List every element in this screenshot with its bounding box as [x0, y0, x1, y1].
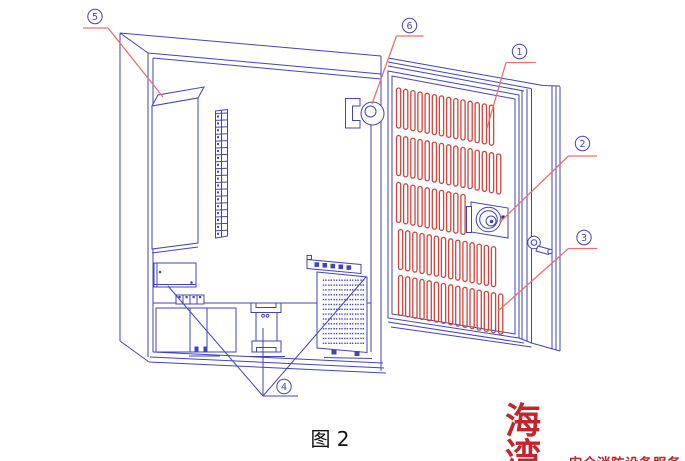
board-hole [347, 304, 348, 305]
terminal-strip-mark [217, 198, 219, 200]
cabinet-frame-bottom [149, 352, 386, 373]
board-hole [328, 280, 329, 281]
board-hole [325, 338, 326, 339]
board-hole [331, 299, 332, 300]
terminal-strip-rung [216, 141, 228, 142]
board-hole [344, 304, 345, 305]
board-hole [325, 318, 326, 319]
figure-page: 5 6 1 2 3 4 图 2 海湾 安全消防设备服务 www.haiwan11… [0, 0, 685, 461]
board-hole [341, 343, 342, 344]
terminal-strip-mark [217, 122, 219, 124]
board-hole [352, 289, 353, 290]
board-base-line [324, 358, 372, 359]
board-hole [357, 280, 358, 281]
power-module [249, 303, 285, 357]
board-hole [334, 333, 335, 334]
brand-tagline: 安全消防设备服务 [569, 452, 681, 461]
board-hole [360, 284, 361, 285]
board-hole [363, 309, 364, 310]
board-strip-tab [307, 256, 312, 260]
board-hole [331, 280, 332, 281]
board-hole [357, 343, 358, 344]
board-hole [325, 280, 326, 281]
board-terminal [323, 263, 328, 268]
board-hole [334, 328, 335, 329]
wall-plate-outline [154, 263, 196, 287]
board-hole [339, 323, 340, 324]
board-hole [334, 323, 335, 324]
board-hole [331, 343, 332, 344]
board-hole [331, 289, 332, 290]
board-hole [334, 294, 335, 295]
board-hole [360, 333, 361, 334]
board-hole [352, 299, 353, 300]
terminal-strip-rung [216, 210, 228, 211]
board-hole [323, 343, 324, 344]
board-hole [323, 289, 324, 290]
board-hole [357, 294, 358, 295]
terminal-strip-rung [216, 196, 228, 197]
board-hole [352, 323, 353, 324]
wall-plate-dot [159, 271, 162, 274]
board-hole [339, 318, 340, 319]
board-hole [350, 313, 351, 314]
callout-5: 5 [88, 9, 102, 23]
terminal-strip-rung [216, 161, 228, 162]
battery-terminal [204, 347, 208, 352]
board-hole [325, 304, 326, 305]
board-hole [347, 313, 348, 314]
board-hole [363, 284, 364, 285]
board-hole [347, 323, 348, 324]
terminal-strip-rung [216, 154, 228, 155]
board-hole [344, 289, 345, 290]
board-hole [355, 328, 356, 329]
board-hole [352, 309, 353, 310]
mounting-panel-face [152, 98, 198, 249]
board-hole [363, 318, 364, 319]
board-hole [344, 309, 345, 310]
board-hole [347, 289, 348, 290]
terminal-strip-mark [217, 129, 219, 131]
board-hole [331, 338, 332, 339]
board-hole [350, 323, 351, 324]
board-hole [363, 289, 364, 290]
board-hole [350, 304, 351, 305]
board-hole [352, 338, 353, 339]
connector-pin [193, 296, 195, 298]
board-hole [357, 333, 358, 334]
terminal-strip-rung [216, 113, 228, 114]
board-hole [334, 318, 335, 319]
board-hole [344, 338, 345, 339]
board-hole [347, 280, 348, 281]
board-hole [328, 304, 329, 305]
board-hole [360, 294, 361, 295]
board-hole [357, 289, 358, 290]
terminal-strip-mark [217, 116, 219, 118]
cabinet-frame-top [148, 53, 381, 79]
board-hole [347, 318, 348, 319]
wall-plate-dot [190, 281, 193, 284]
board-hole [344, 343, 345, 344]
terminal-strip-mark [217, 185, 219, 187]
board-hole [323, 309, 324, 310]
board-hole [334, 280, 335, 281]
board-hole [334, 309, 335, 310]
board-hole [328, 328, 329, 329]
terminal-strip-rung [216, 182, 228, 183]
board-hole [352, 343, 353, 344]
board-hole [339, 289, 340, 290]
brand-logo: 海湾 安全消防设备服务 www.haiwan119.com [505, 403, 681, 461]
board-hole [355, 309, 356, 310]
terminal-strip-mark [217, 219, 219, 221]
board-hole [360, 323, 361, 324]
terminal-strip-rung [216, 148, 228, 149]
board-hole [339, 338, 340, 339]
cabinet-door [388, 58, 560, 351]
terminal-strip-rung [216, 189, 228, 190]
board-hole [363, 294, 364, 295]
board-hole [350, 343, 351, 344]
cabinet-diagram: 5 6 1 2 3 4 [0, 0, 685, 461]
board-hole [336, 323, 337, 324]
board-hole [341, 323, 342, 324]
board-hole [339, 343, 340, 344]
board-hole [355, 333, 356, 334]
board-terminal [339, 265, 344, 270]
board-hole [325, 313, 326, 314]
callout-6: 6 [402, 18, 416, 32]
board-hole [331, 294, 332, 295]
battery-box-outline [156, 308, 236, 352]
callout-5-leader [83, 28, 163, 97]
callout-3-number: 3 [581, 233, 587, 244]
board-hole [363, 323, 364, 324]
mounting-panel [152, 87, 204, 253]
board-hole [341, 284, 342, 285]
board-hole [355, 318, 356, 319]
board-hole [336, 343, 337, 344]
board-hole [328, 338, 329, 339]
board-hole [331, 318, 332, 319]
board-hole [347, 333, 348, 334]
callout-6-number: 6 [406, 21, 412, 32]
board-hole [331, 328, 332, 329]
board-terminal [331, 264, 336, 269]
board-terminal [315, 262, 320, 267]
board-hole [323, 304, 324, 305]
board-hole [325, 294, 326, 295]
connector-pin [199, 296, 201, 298]
board-hole [325, 284, 326, 285]
board-hole [350, 309, 351, 310]
board-hole [336, 328, 337, 329]
board-hole [344, 328, 345, 329]
board-hole [357, 299, 358, 300]
board-hole [360, 309, 361, 310]
terminal-strip-mark [217, 143, 219, 145]
board-hole [341, 338, 342, 339]
board-hole [341, 313, 342, 314]
hinge-bracket [346, 99, 361, 129]
board-hole [350, 338, 351, 339]
board-hole [357, 338, 358, 339]
board-hole [357, 328, 358, 329]
board-hole [360, 304, 361, 305]
board-hole [350, 328, 351, 329]
board-hole [360, 318, 361, 319]
terminal-strip-rung [216, 230, 228, 231]
board-hole [350, 299, 351, 300]
cabinet-corner-chamfer [120, 33, 148, 53]
board-hole [352, 294, 353, 295]
board-foot [355, 351, 360, 356]
board-hole [352, 328, 353, 329]
board-hole [344, 323, 345, 324]
hinge-knuckle [361, 102, 384, 125]
board-hole [363, 333, 364, 334]
board-hole [323, 294, 324, 295]
board-hole [355, 338, 356, 339]
board-hole [339, 304, 340, 305]
board-hole [363, 299, 364, 300]
board-hole [360, 289, 361, 290]
board-hole [352, 313, 353, 314]
board-hole [328, 294, 329, 295]
cabinet-interior [152, 87, 384, 359]
board-hole [355, 304, 356, 305]
board-hole [344, 313, 345, 314]
board-hole [325, 289, 326, 290]
board-hole [355, 343, 356, 344]
brand-logo-row: 海湾 安全消防设备服务 [505, 403, 681, 461]
board-hole [350, 289, 351, 290]
board-hole [344, 294, 345, 295]
board-hole [328, 299, 329, 300]
board-hole [363, 304, 364, 305]
board-hole [341, 294, 342, 295]
board-hole [336, 299, 337, 300]
board-hole [341, 309, 342, 310]
terminal-strip-rung [216, 217, 228, 218]
board-hole [347, 284, 348, 285]
board-hole [357, 323, 358, 324]
terminal-strip-vertical [216, 110, 228, 239]
board-hole [344, 333, 345, 334]
board-hole [339, 313, 340, 314]
door-hinge [346, 99, 385, 129]
board-hole [352, 333, 353, 334]
board-hole [357, 313, 358, 314]
board-hole [350, 280, 351, 281]
board-hole [328, 309, 329, 310]
cabinet-bottom-chamfer [120, 341, 149, 362]
callout-2-number: 2 [579, 139, 585, 150]
board-hole [355, 280, 356, 281]
board-hole [341, 289, 342, 290]
callout-5-number: 5 [92, 12, 98, 23]
board-hole [325, 328, 326, 329]
board-terminal [347, 265, 352, 270]
board-hole [352, 304, 353, 305]
board-hole [325, 343, 326, 344]
board-hole [339, 280, 340, 281]
board-hole [357, 309, 358, 310]
board-hole [350, 333, 351, 334]
terminal-strip-mark [217, 171, 219, 173]
board-hole [360, 299, 361, 300]
wall-plate [154, 263, 196, 287]
callout-2: 2 [575, 136, 589, 150]
terminal-strip-rung [216, 223, 228, 224]
brand-name: 海湾 [505, 403, 566, 461]
board-hole [334, 343, 335, 344]
terminal-strip-mark [217, 150, 219, 152]
battery-box [156, 308, 236, 356]
board-hole [325, 333, 326, 334]
terminal-strip-rung [216, 168, 228, 169]
board-hole [363, 338, 364, 339]
board-hole [357, 304, 358, 305]
board-hole [341, 299, 342, 300]
terminal-strip-rung [216, 127, 228, 128]
board-hole [339, 333, 340, 334]
cabinet-top-edge [120, 33, 381, 56]
terminal-strip-mark [217, 233, 219, 235]
board-hole [323, 338, 324, 339]
board-hole [328, 343, 329, 344]
board-hole [328, 284, 329, 285]
board-hole [336, 284, 337, 285]
terminal-strip-rung [216, 175, 228, 176]
board-hole [341, 328, 342, 329]
terminal-strip-mark [217, 164, 219, 166]
board-hole [360, 280, 361, 281]
board-hole [336, 313, 337, 314]
terminal-strip-rung [216, 203, 228, 204]
board-hole [334, 304, 335, 305]
board-hole [347, 309, 348, 310]
board-hole [325, 299, 326, 300]
board-hole [339, 284, 340, 285]
board-hole [344, 318, 345, 319]
board-hole [347, 294, 348, 295]
board-hole [331, 309, 332, 310]
board-hole [350, 284, 351, 285]
board-hole [347, 328, 348, 329]
terminal-strip-rung [216, 134, 228, 135]
board-hole [363, 343, 364, 344]
callout-1: 1 [512, 44, 526, 58]
board-hole [328, 313, 329, 314]
lock-keyhole [490, 220, 494, 224]
terminal-strip-mark [217, 136, 219, 138]
board-hole [323, 284, 324, 285]
board-hole [331, 304, 332, 305]
board-hole [352, 284, 353, 285]
terminal-strip-mark [217, 212, 219, 214]
board-foot [332, 350, 337, 355]
board-hole [323, 299, 324, 300]
board-hole [328, 323, 329, 324]
terminal-strip-mark [217, 157, 219, 159]
board-hole [336, 304, 337, 305]
board-hole [339, 299, 340, 300]
callout-1-number: 1 [516, 47, 522, 58]
lock-bracket [467, 207, 472, 233]
board-hole [352, 280, 353, 281]
callout-3: 3 [577, 230, 591, 244]
board-hole [339, 294, 340, 295]
board-hole [339, 328, 340, 329]
board-hole [328, 333, 329, 334]
board-hole [328, 289, 329, 290]
board-hole [334, 299, 335, 300]
board-hole [336, 338, 337, 339]
board-hole [355, 299, 356, 300]
callout-4: 4 [277, 379, 291, 393]
board-hole [331, 333, 332, 334]
callout-2-leader-tip [500, 220, 503, 223]
board-hole [357, 318, 358, 319]
board-hole [325, 309, 326, 310]
board-hole [347, 338, 348, 339]
board-hole [350, 318, 351, 319]
battery-terminal [195, 347, 199, 352]
latch-pin-tip [548, 249, 552, 253]
board-hole [360, 343, 361, 344]
board-hole [363, 328, 364, 329]
board-hole [341, 318, 342, 319]
board-hole [355, 284, 356, 285]
board-hole [323, 280, 324, 281]
board-hole [323, 318, 324, 319]
terminal-strip-rung [216, 120, 228, 121]
board-hole [344, 280, 345, 281]
board-hole [336, 318, 337, 319]
board-hole [323, 323, 324, 324]
board-hole [336, 333, 337, 334]
terminal-strip-mark [217, 191, 219, 193]
board-hole [336, 289, 337, 290]
board-hole [323, 328, 324, 329]
board-hole [360, 328, 361, 329]
board-hole [363, 313, 364, 314]
terminal-strip-mark [217, 226, 219, 228]
board-hole [341, 333, 342, 334]
board-hole [344, 284, 345, 285]
board-hole [336, 280, 337, 281]
connector-pin [186, 296, 188, 298]
figure-caption: 图 2 [300, 423, 360, 452]
board-hole [355, 313, 356, 314]
terminal-strip-mark [217, 178, 219, 180]
board-hole [336, 294, 337, 295]
board-hole [334, 289, 335, 290]
board-hole [323, 333, 324, 334]
terminal-strip-mark [217, 205, 219, 207]
board-hole [355, 323, 356, 324]
board-hole [355, 294, 356, 295]
board-hole [331, 323, 332, 324]
board-hole [360, 313, 361, 314]
board-hole [331, 284, 332, 285]
board-hole [323, 313, 324, 314]
board-hole [360, 338, 361, 339]
board-hole [334, 338, 335, 339]
